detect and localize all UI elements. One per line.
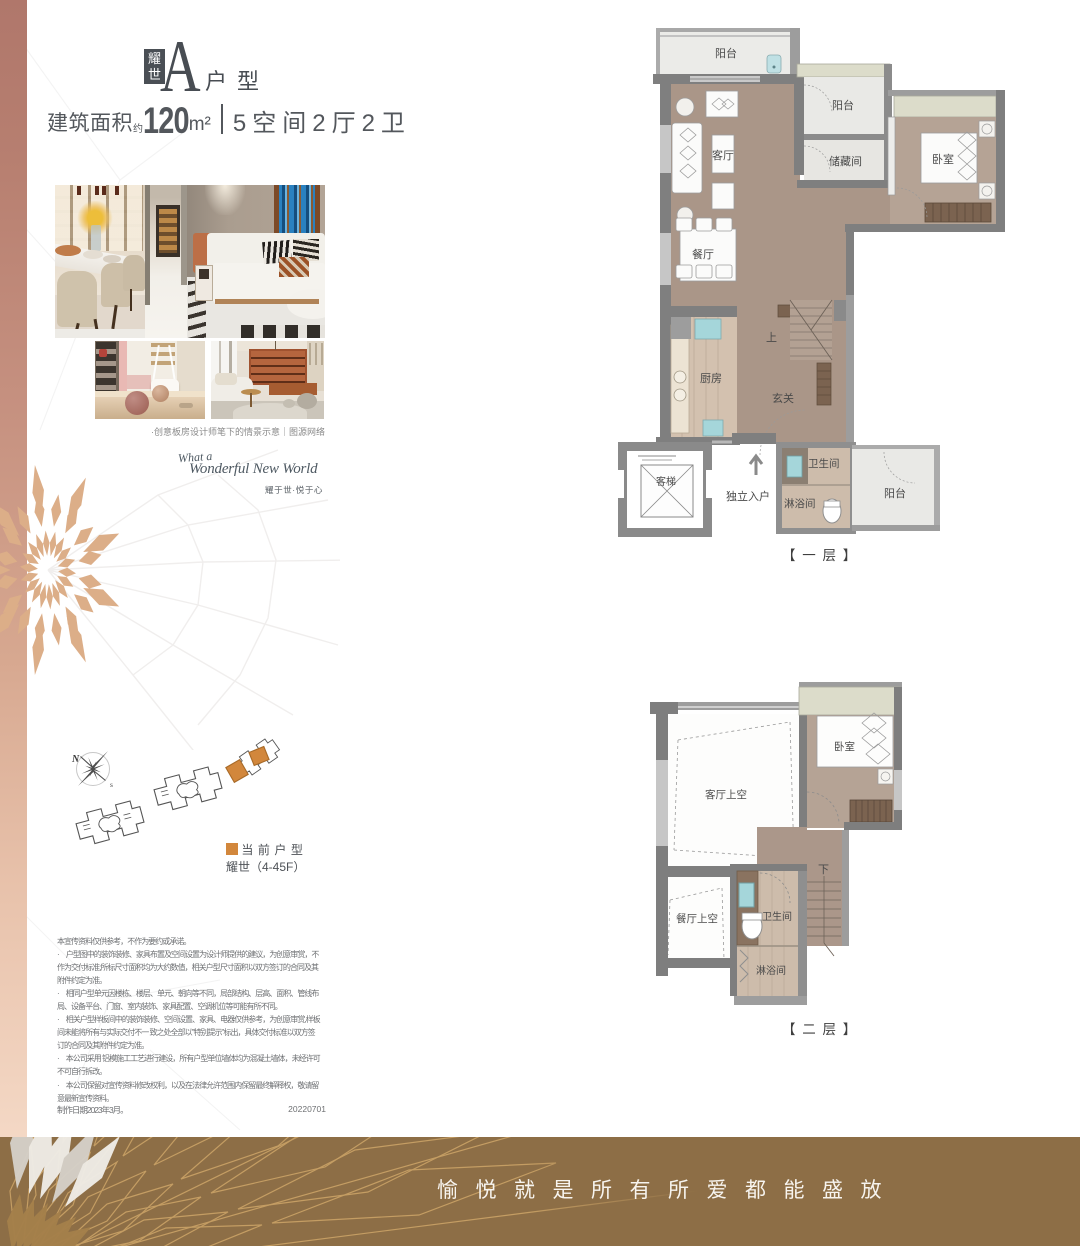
- svg-text:【 二 层 】: 【 二 层 】: [782, 1022, 858, 1037]
- svg-text:下: 下: [818, 864, 829, 876]
- svg-text:储藏间: 储藏间: [829, 154, 862, 168]
- svg-text:餐厅: 餐厅: [692, 247, 714, 261]
- svg-text:卫生间: 卫生间: [762, 910, 792, 923]
- svg-text:阳台: 阳台: [832, 98, 854, 112]
- svg-text:客厅上空: 客厅上空: [705, 788, 747, 801]
- svg-text:卧室: 卧室: [932, 152, 954, 166]
- svg-text:上: 上: [766, 331, 777, 344]
- svg-text:【 一 层 】: 【 一 层 】: [782, 548, 858, 563]
- svg-text:客梯: 客梯: [656, 475, 676, 488]
- svg-text:淋浴间: 淋浴间: [784, 497, 816, 510]
- svg-text:卫生间: 卫生间: [808, 457, 840, 470]
- svg-text:阳台: 阳台: [884, 486, 906, 500]
- svg-text:餐厅上空: 餐厅上空: [676, 912, 718, 925]
- svg-text:阳台: 阳台: [715, 46, 737, 60]
- svg-text:淋浴间: 淋浴间: [756, 964, 786, 977]
- svg-text:卧室: 卧室: [834, 740, 855, 753]
- svg-text:玄关: 玄关: [772, 391, 794, 405]
- svg-text:独立入户: 独立入户: [726, 489, 770, 503]
- svg-text:客厅: 客厅: [712, 148, 734, 162]
- svg-text:厨房: 厨房: [700, 372, 722, 385]
